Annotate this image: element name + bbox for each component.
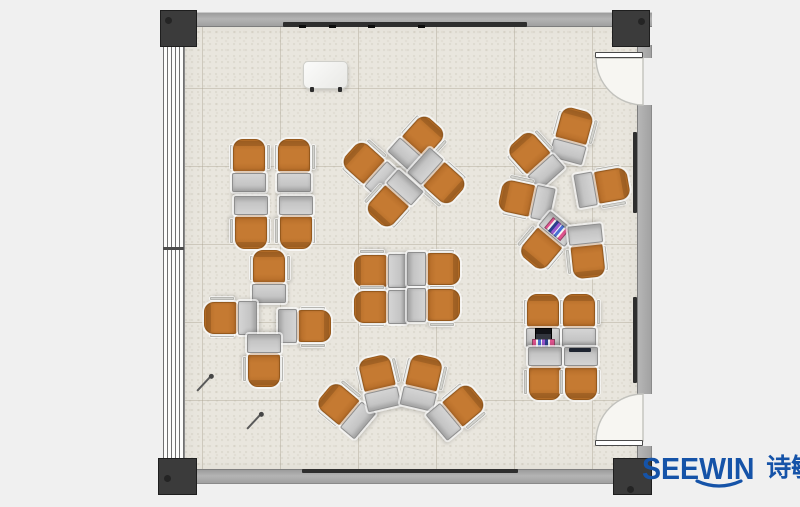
door-swing-arcs <box>0 0 800 507</box>
top-right-door-arc <box>596 58 643 105</box>
bottom-wall-board-strip <box>302 469 518 473</box>
logo-cjk-text: 诗敏 <box>766 451 800 485</box>
top-wall-board-strip <box>283 22 527 27</box>
mobile-whiteboard <box>303 61 348 89</box>
seewin-logo: SEEWIN 诗敏 <box>642 451 798 493</box>
logo-swoosh-icon <box>695 479 745 491</box>
bottom-right-door-arc <box>596 394 643 441</box>
floor-plan-canvas: SEEWIN 诗敏 <box>0 0 800 507</box>
whiteboard-foot <box>338 87 342 92</box>
whiteboard-foot <box>310 87 314 92</box>
